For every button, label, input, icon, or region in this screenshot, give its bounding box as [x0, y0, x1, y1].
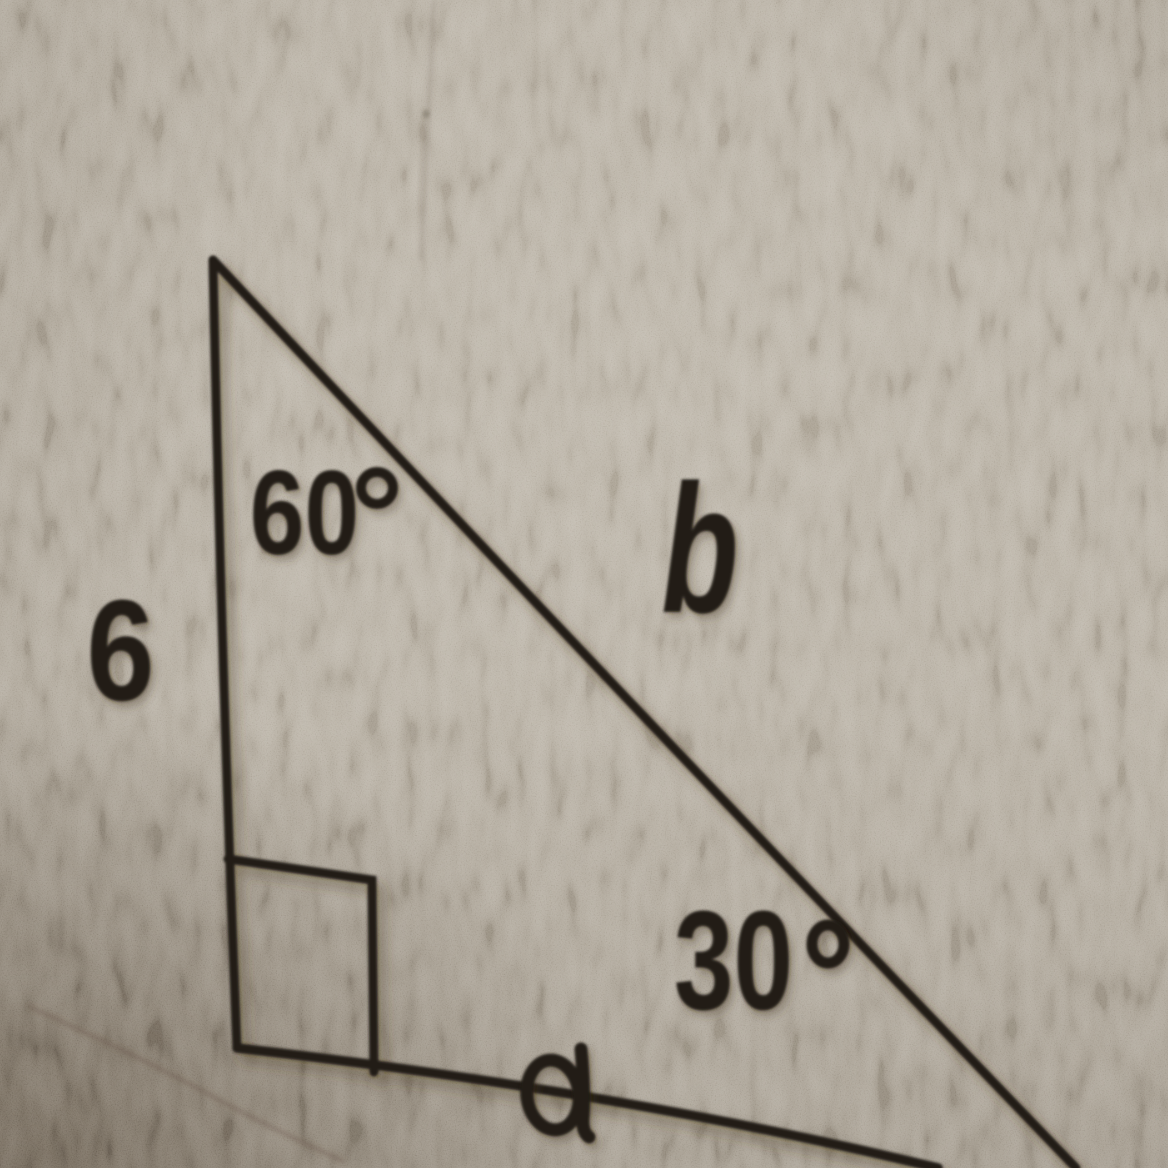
svg-text:b: b [661, 448, 738, 652]
svg-text:60: 60 [250, 447, 359, 580]
svg-text:30: 30 [674, 882, 793, 1040]
svg-text:6: 6 [86, 571, 154, 732]
